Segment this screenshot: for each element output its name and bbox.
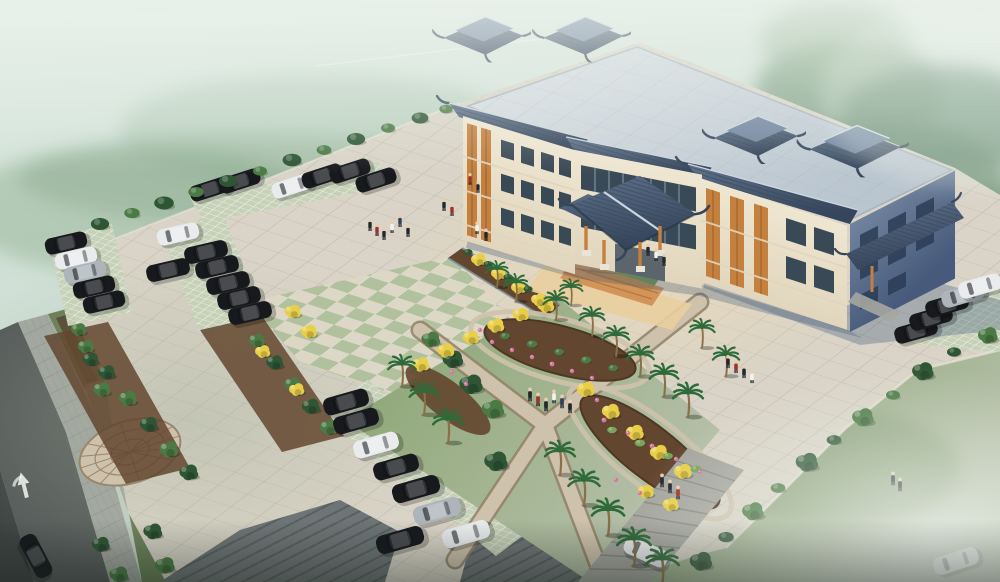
flower-cluster: [490, 340, 494, 344]
scene-svg: [0, 0, 1000, 582]
flower-cluster: [450, 370, 454, 374]
flower-cluster: [464, 382, 468, 386]
flower-cluster: [530, 355, 534, 359]
rendering-root: [0, 0, 1000, 582]
flower-cluster: [550, 362, 555, 367]
flower-cluster: [478, 328, 482, 332]
flower-cluster: [510, 348, 514, 352]
